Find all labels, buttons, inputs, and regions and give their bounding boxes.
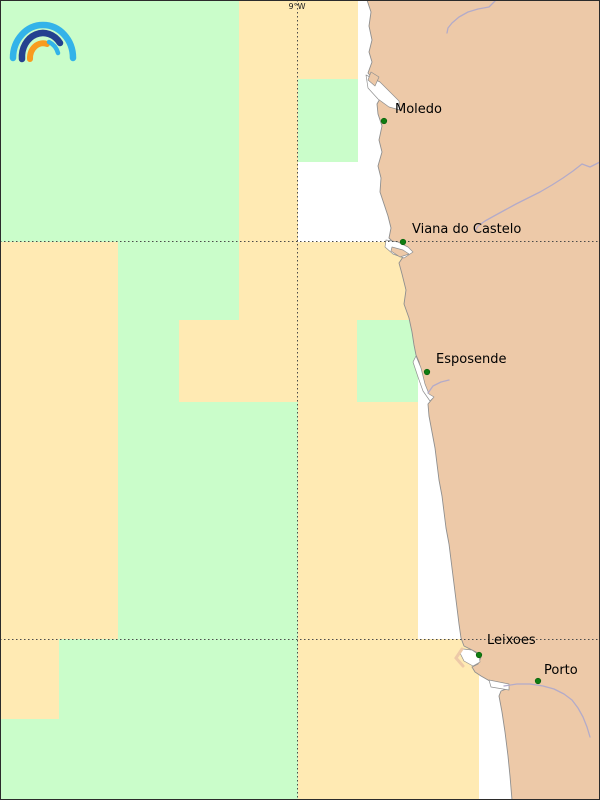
- city-label: Moledo: [395, 102, 442, 117]
- city-label: Leixoes: [487, 633, 536, 648]
- forecast-cell: [118, 320, 179, 402]
- city-label: Viana do Castelo: [412, 222, 521, 237]
- forecast-map: 9°WMoledoViana do CasteloEsposendeLeixoe…: [0, 0, 600, 800]
- forecast-cell: [298, 639, 479, 800]
- city-marker: [476, 652, 482, 658]
- map-canvas: 9°WMoledoViana do CasteloEsposendeLeixoe…: [0, 0, 600, 800]
- forecast-cell: [239, 0, 298, 242]
- forecast-cell: [118, 242, 239, 320]
- forecast-cell: [118, 402, 298, 639]
- city-marker: [381, 118, 387, 124]
- forecast-cell: [357, 320, 418, 402]
- forecast-cell: [59, 639, 298, 800]
- forecast-cell: [298, 79, 358, 162]
- forecast-cell: [0, 639, 59, 719]
- city-label: Porto: [544, 663, 578, 678]
- city-marker: [535, 678, 541, 684]
- city-label: Esposende: [436, 352, 506, 367]
- forecast-cell: [298, 320, 357, 402]
- city-marker: [400, 239, 406, 245]
- forecast-cell: [179, 320, 239, 402]
- city-marker: [424, 369, 430, 375]
- forecast-cell: [298, 402, 418, 639]
- forecast-cell: [239, 242, 298, 402]
- forecast-cell: [0, 242, 118, 639]
- forecast-cell: [298, 0, 358, 79]
- forecast-cell: [0, 719, 59, 800]
- gridline-label: 9°W: [289, 2, 306, 11]
